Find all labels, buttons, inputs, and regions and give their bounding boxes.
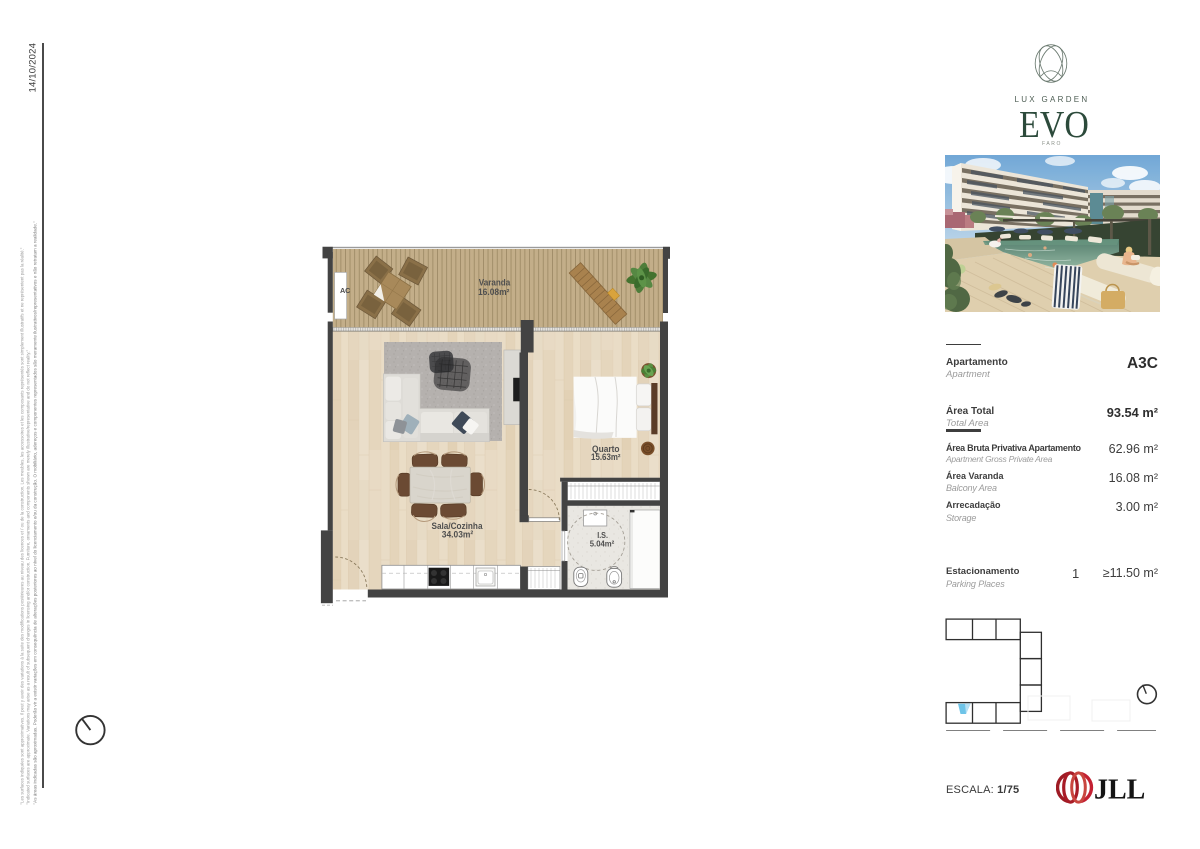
svg-text:5.04m²: 5.04m² [590,538,615,548]
svg-text:16.08m²: 16.08m² [478,287,510,297]
svg-text:34.03m²: 34.03m² [442,530,474,541]
svg-text:AC: AC [340,286,351,295]
svg-text:15.63m²: 15.63m² [591,452,621,462]
svg-text:JLL: JLL [1094,775,1145,806]
